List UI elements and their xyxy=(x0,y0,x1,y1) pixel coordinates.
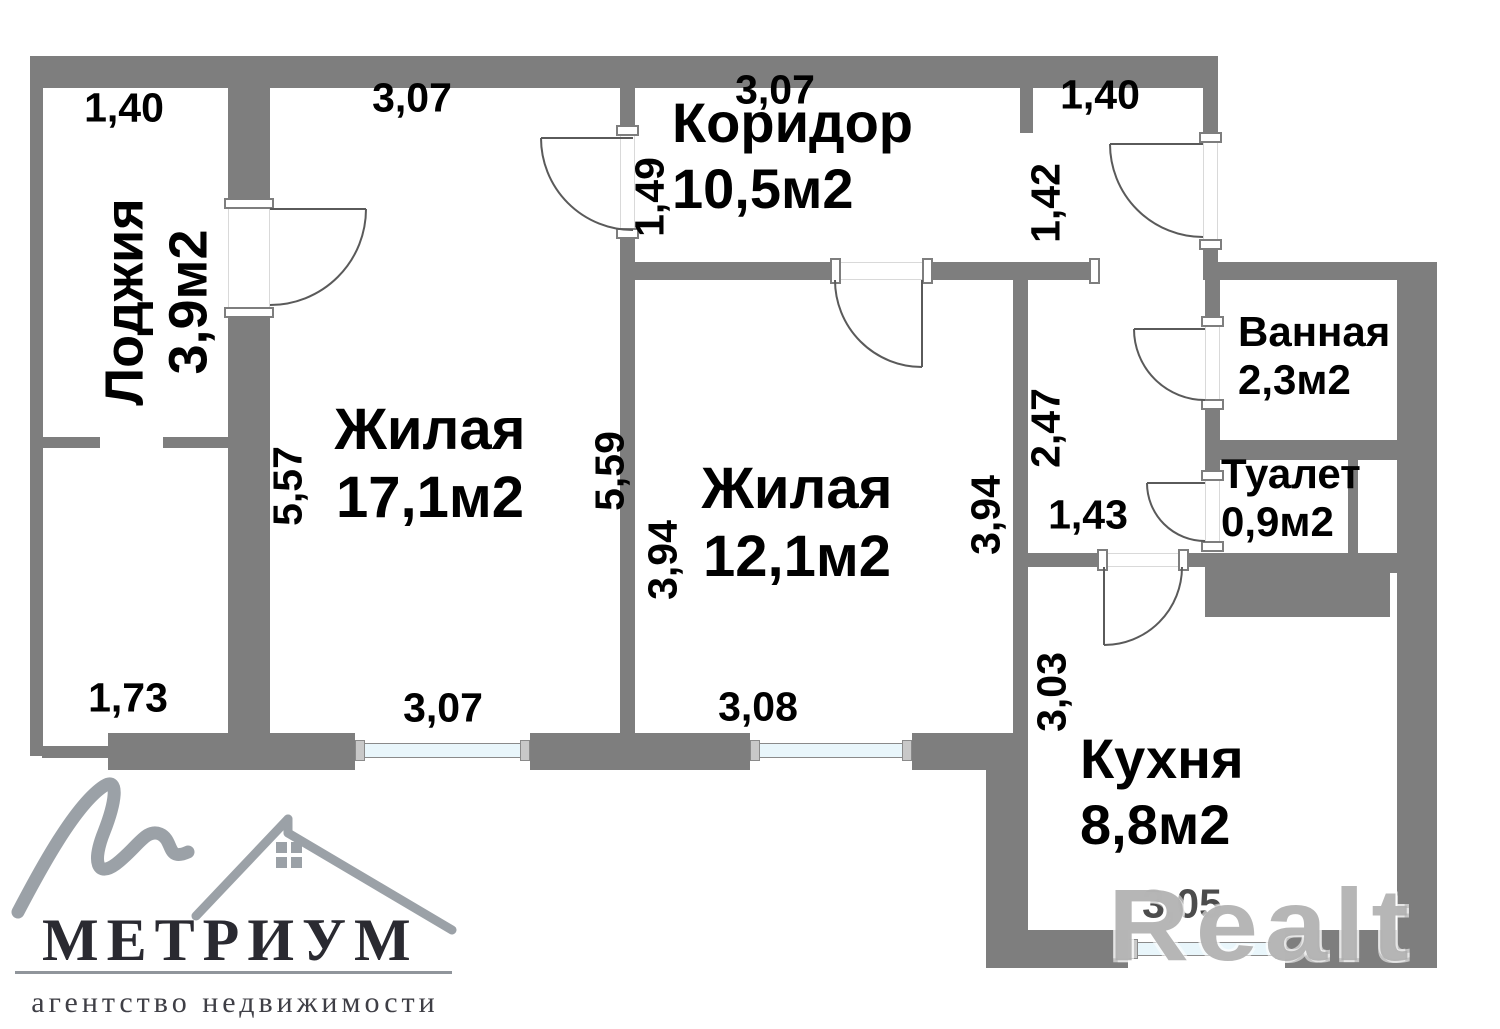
dim-hall-right: 2,47 xyxy=(1026,388,1067,468)
room-label-corridor: Коридор 10,5м2 xyxy=(672,90,913,222)
dim-room2-left: 3,94 xyxy=(643,520,684,600)
room-label-room2: Жилая 12,1м2 xyxy=(701,455,892,592)
room-name: Туалет xyxy=(1221,450,1361,498)
room-name: Коридор xyxy=(672,90,913,156)
door-loggia xyxy=(270,209,366,305)
door-room2 xyxy=(835,280,922,367)
room-area: 3,9м2 xyxy=(157,198,221,405)
dim-room2-bottom: 3,08 xyxy=(718,687,798,728)
room-area: 12,1м2 xyxy=(701,523,892,591)
logo-brand-name: МЕТРИУМ xyxy=(42,906,419,975)
logo-roof-left xyxy=(196,819,288,916)
dim-loggia-bottom: 1,73 xyxy=(88,678,168,719)
room-area: 2,3м2 xyxy=(1238,356,1390,404)
room-name: Жилая xyxy=(334,396,525,464)
dim-hall-width: 1,43 xyxy=(1048,495,1128,536)
floor-plan: 1,40 3,07 3,07 1,40 1,49 1,42 5,57 5,59 … xyxy=(0,0,1500,1029)
dim-room1-right: 5,59 xyxy=(590,431,631,511)
room-label-kitchen: Кухня 8,8м2 xyxy=(1080,726,1244,858)
dim-entry-left: 1,42 xyxy=(1026,163,1067,243)
dim-entry-top: 1,40 xyxy=(1060,75,1140,116)
room-label-toilet: Туалет 0,9м2 xyxy=(1221,450,1361,547)
dim-room1-bottom: 3,07 xyxy=(403,688,483,729)
room-area: 0,9м2 xyxy=(1221,498,1361,546)
door-toilet xyxy=(1147,483,1205,541)
room-name: Кухня xyxy=(1080,726,1244,792)
room-name: Ванная xyxy=(1238,308,1390,356)
room-label-bathroom: Ванная 2,3м2 xyxy=(1238,308,1390,405)
room-area: 8,8м2 xyxy=(1080,792,1244,858)
logo-window-icon xyxy=(276,842,302,868)
room-name: Жилая xyxy=(701,455,892,523)
dim-room2-right: 3,94 xyxy=(966,475,1007,555)
dim-room1-top: 3,07 xyxy=(372,78,452,119)
realt-watermark: Realt xyxy=(1108,874,1415,976)
logo-swoosh-icon xyxy=(18,784,188,912)
door-room1 xyxy=(541,138,633,230)
room-label-room1: Жилая 17,1м2 xyxy=(334,396,525,533)
room-area: 10,5м2 xyxy=(672,156,913,222)
logo-divider xyxy=(15,971,452,974)
dim-corridor-left: 1,49 xyxy=(630,157,671,237)
door-bathroom xyxy=(1134,329,1205,400)
dim-loggia-top: 1,40 xyxy=(84,88,164,129)
room-label-loggia: Лоджия 3,9м2 xyxy=(93,198,220,405)
room-area: 17,1м2 xyxy=(334,464,525,532)
door-kitchen xyxy=(1104,567,1182,645)
dim-kitchen-left: 3,03 xyxy=(1032,652,1073,732)
door-entrance xyxy=(1110,144,1203,237)
room-name: Лоджия xyxy=(93,198,157,405)
dim-room1-left: 5,57 xyxy=(268,446,309,526)
logo-tagline: агентство недвижимости xyxy=(15,986,455,1020)
